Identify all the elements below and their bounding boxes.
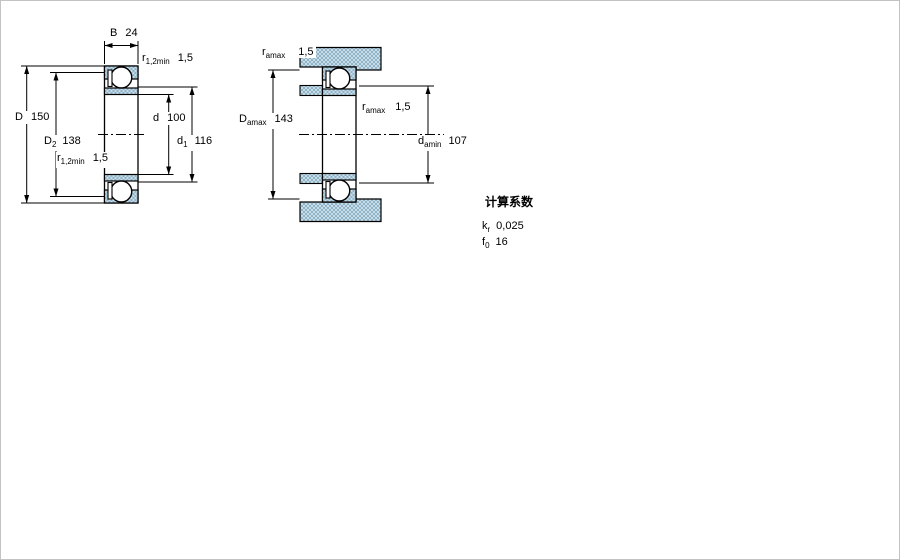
dim-label-ramax-top: ramax1,5 (262, 46, 316, 62)
dim-label-outer-diameter-D: D150 (14, 111, 50, 124)
dim-label-ramax-mid: ramax1,5 (362, 101, 411, 117)
shaft-shoulder-top (300, 86, 323, 96)
calculation-factors-title: 计算系数 (484, 196, 534, 209)
dim-label-Damax: Damax143 (238, 113, 294, 129)
dim-label-r12min-bottom: r1,2min1,5 (56, 152, 109, 168)
factor-f0: f016 (482, 236, 508, 252)
dim-label-width-B: B24 (110, 27, 138, 40)
bearing-technical-drawing: B24 r1,2min1,5 D150 d100 D2138 d1116 r1,… (0, 0, 900, 560)
shaft-shoulder-bottom (300, 174, 323, 184)
ext-lines-B (105, 41, 139, 64)
factor-kr: kr0,025 (482, 220, 524, 236)
dim-label-d1: d1116 (176, 135, 213, 151)
dim-label-r12min-top: r1,2min1,5 (142, 52, 193, 68)
dim-label-bore-d: d100 (152, 112, 186, 125)
drawing-layer (1, 1, 899, 559)
dim-label-damin: damin107 (417, 135, 468, 151)
dim-label-D2: D2138 (43, 135, 82, 151)
